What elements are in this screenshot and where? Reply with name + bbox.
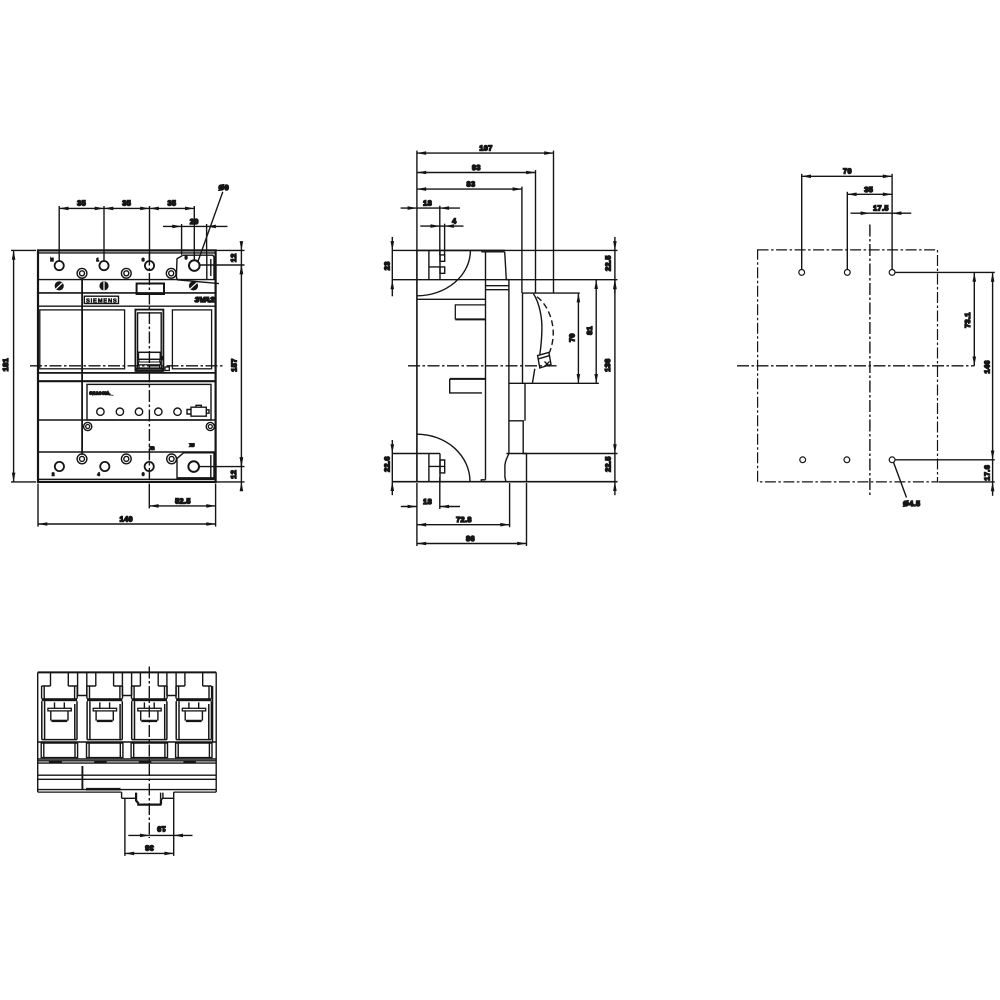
svg-text:140: 140 — [120, 514, 133, 523]
svg-text:12: 12 — [229, 253, 238, 262]
svg-text:Ø4.5: Ø4.5 — [903, 499, 920, 508]
svg-text:86: 86 — [466, 534, 475, 543]
svg-text:Ø9: Ø9 — [219, 183, 230, 192]
svg-text:3VA2: 3VA2 — [195, 297, 215, 304]
svg-text:N: N — [51, 257, 54, 262]
svg-text:107: 107 — [479, 144, 492, 153]
svg-text:4: 4 — [452, 217, 457, 226]
svg-text:18: 18 — [423, 199, 432, 208]
svg-text:52.5: 52.5 — [175, 496, 191, 505]
svg-text:72.8: 72.8 — [456, 515, 472, 524]
svg-text:12: 12 — [229, 470, 238, 479]
svg-text:22.6: 22.6 — [383, 456, 392, 472]
svg-text:3VL9.8-8SA.: 3VL9.8-8SA. — [90, 390, 111, 395]
svg-text:2: 2 — [52, 472, 55, 477]
svg-text:6: 6 — [142, 472, 145, 477]
svg-text:136: 136 — [603, 358, 612, 371]
svg-text:22.5: 22.5 — [604, 255, 613, 271]
svg-text:35: 35 — [864, 185, 873, 194]
svg-text:35: 35 — [122, 199, 131, 208]
svg-text:X2: X2 — [150, 446, 156, 451]
svg-text:81: 81 — [585, 326, 594, 335]
svg-text:23: 23 — [382, 261, 391, 270]
svg-text:35: 35 — [77, 199, 86, 208]
svg-text:X5: X5 — [190, 443, 196, 448]
svg-text:19: 19 — [157, 825, 166, 834]
svg-text:157: 157 — [230, 358, 239, 371]
svg-text:18: 18 — [423, 497, 432, 506]
svg-text:73.1: 73.1 — [963, 312, 972, 328]
svg-text:3: 3 — [142, 257, 145, 262]
svg-text:181: 181 — [1, 358, 10, 371]
svg-text:1: 1 — [97, 257, 100, 262]
svg-text:17.5: 17.5 — [873, 204, 889, 213]
svg-text:146: 146 — [982, 360, 991, 373]
svg-text:70: 70 — [843, 167, 852, 176]
svg-text:70: 70 — [568, 333, 577, 342]
svg-text:22.5: 22.5 — [604, 456, 613, 472]
svg-text:SIEMENS: SIEMENS — [86, 298, 117, 305]
svg-text:35: 35 — [167, 199, 176, 208]
svg-text:93: 93 — [472, 163, 481, 172]
svg-text:4: 4 — [98, 472, 101, 477]
svg-text:83: 83 — [467, 180, 476, 189]
svg-text:20: 20 — [190, 217, 199, 226]
svg-text:17.6: 17.6 — [982, 465, 991, 481]
svg-text:38: 38 — [145, 843, 154, 852]
